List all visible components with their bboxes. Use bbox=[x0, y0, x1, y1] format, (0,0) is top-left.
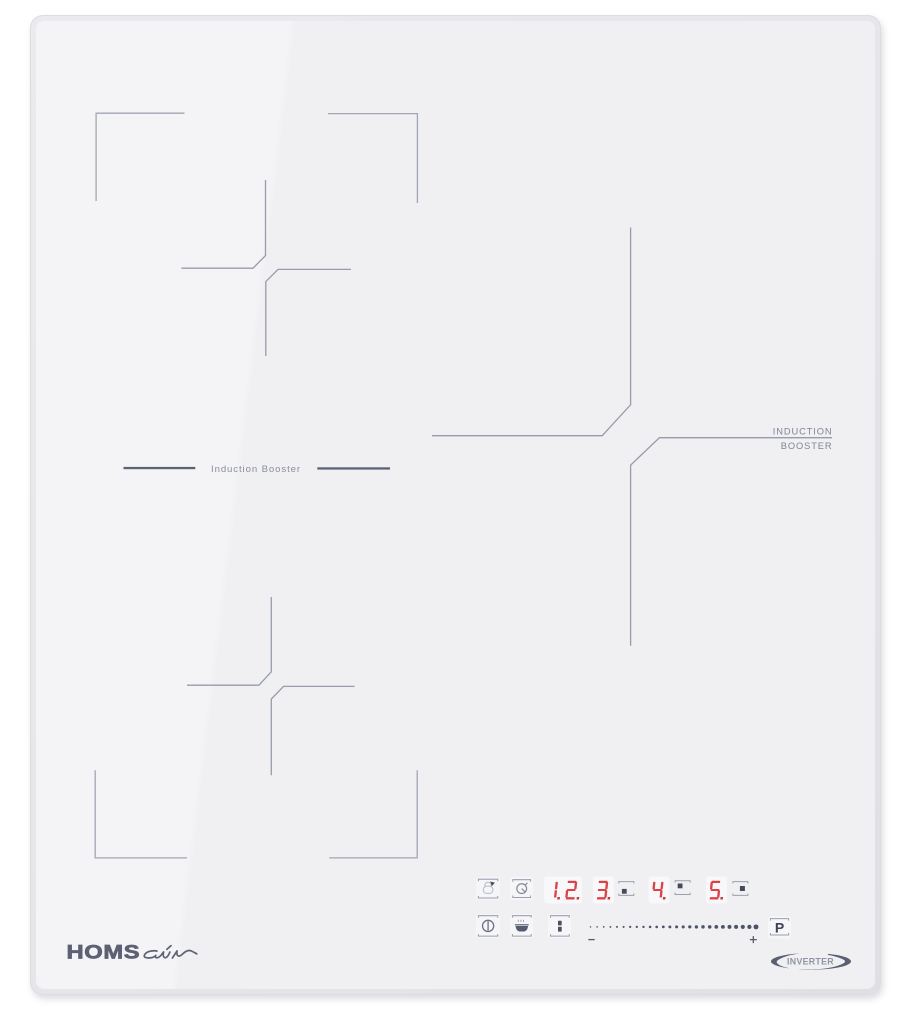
svg-text:INVERTER: INVERTER bbox=[787, 957, 834, 967]
svg-text:Induction Booster: Induction Booster bbox=[211, 464, 301, 475]
svg-text:BOOSTER: BOOSTER bbox=[781, 441, 833, 451]
svg-text:INDUCTION: INDUCTION bbox=[773, 426, 833, 436]
svg-text:HOMS: HOMS bbox=[67, 942, 141, 963]
svg-text:P: P bbox=[775, 920, 784, 936]
